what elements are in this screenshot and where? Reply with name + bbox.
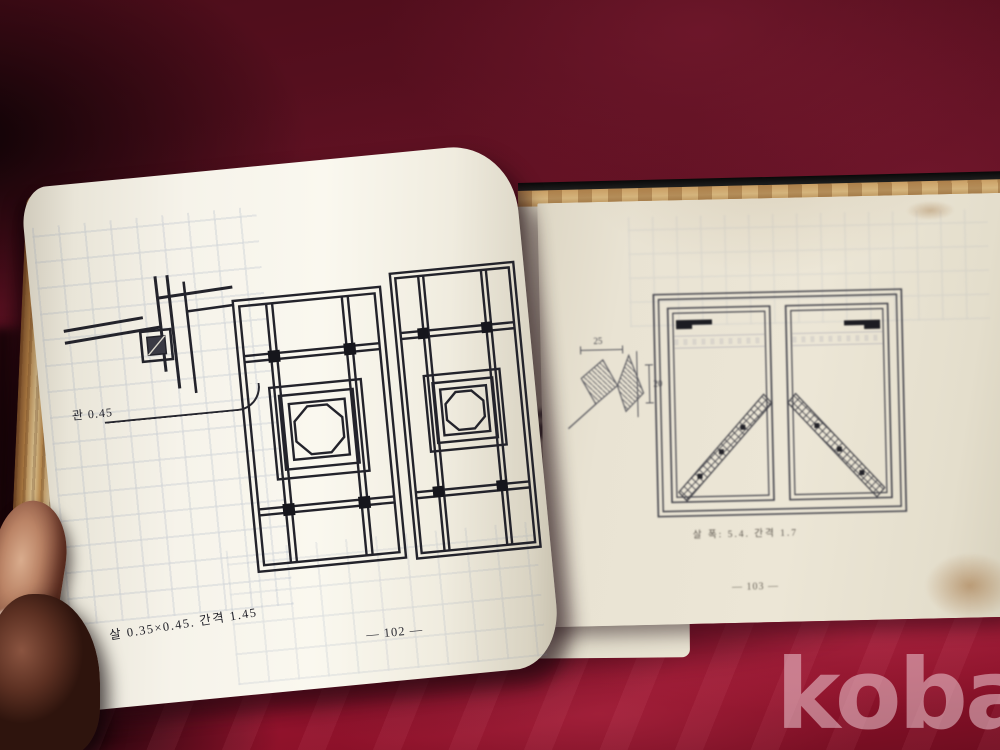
- hinge-mark-right: [844, 320, 880, 330]
- right-page-number: — 103 —: [732, 581, 779, 593]
- right-page-content: 25 20: [537, 193, 1000, 628]
- right-page-caption: 살 폭: 5.4. 간격 1.7: [693, 525, 799, 541]
- lattice-band-left: [677, 394, 774, 501]
- right-page: 25 20: [537, 193, 1000, 628]
- lattice-band-right: [788, 392, 885, 499]
- left-page: 관 0.45: [20, 142, 562, 713]
- paper-stain: [891, 527, 1000, 625]
- paper-stain: [895, 196, 966, 226]
- photo-scene: 25 20: [0, 0, 1000, 750]
- lattice-window-drawing: [228, 254, 547, 598]
- hinge-mark-left: [676, 319, 712, 329]
- door-chevron-drawing: [651, 285, 908, 523]
- kobay-watermark: kobay: [776, 646, 1000, 743]
- dimension-label-top: 25: [593, 336, 603, 346]
